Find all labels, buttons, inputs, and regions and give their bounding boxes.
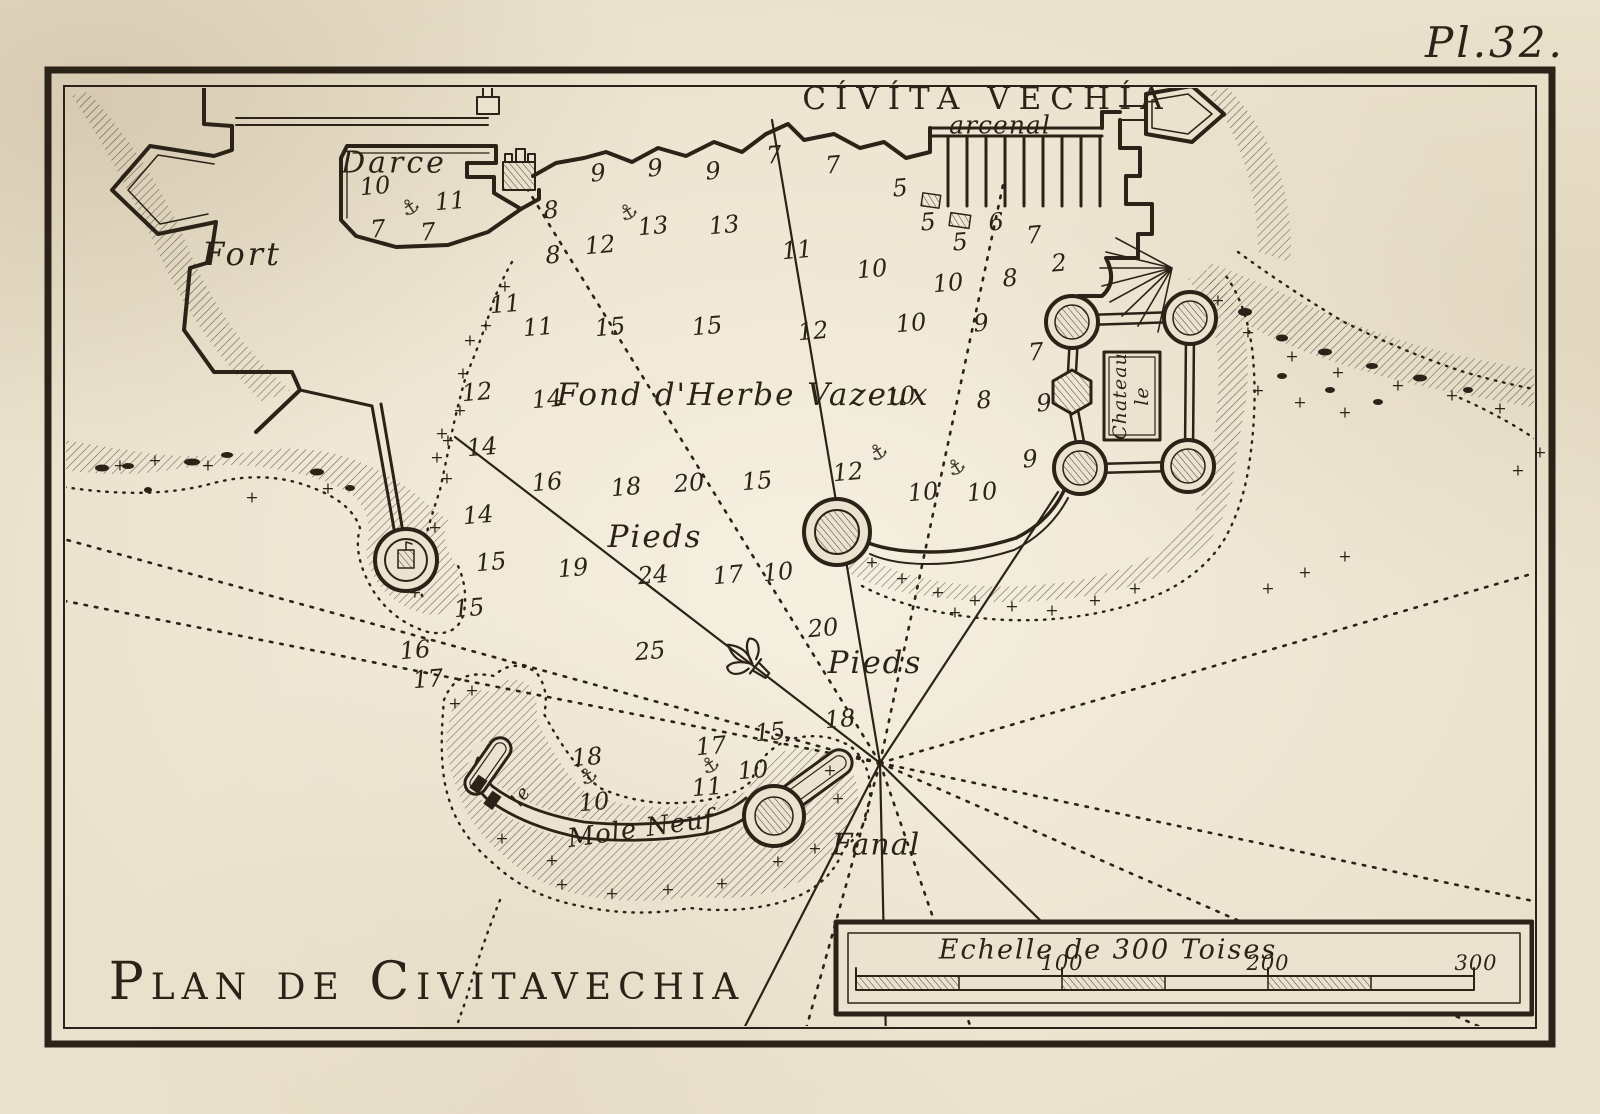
- rock-mark-icon: +: [440, 469, 453, 488]
- rock-mark-icon: +: [831, 789, 844, 808]
- depth-sounding: 15: [754, 717, 787, 748]
- rock-mark-icon: +: [661, 880, 674, 899]
- rock-mark-icon: +: [1533, 443, 1546, 462]
- depth-sounding: 18: [610, 472, 643, 503]
- rock-mark-icon: +: [1298, 563, 1311, 582]
- rock-mark-icon: +: [453, 401, 466, 420]
- rock-mark-icon: +: [1128, 579, 1141, 598]
- depth-sounding: 15: [691, 311, 724, 342]
- depth-sounding: 15: [475, 547, 508, 578]
- depth-sounding: 17: [712, 560, 745, 591]
- rock-mark-icon: +: [948, 603, 961, 622]
- rock-mark-icon: +: [931, 583, 944, 602]
- depth-sounding: 16: [399, 635, 432, 666]
- rock-mark-icon: +: [321, 479, 334, 498]
- rock-mark-icon: +: [865, 553, 878, 572]
- rock-mark-icon: +: [771, 852, 784, 871]
- symbols-layer: 1011779997758812131311556728101010978991…: [0, 0, 1600, 1114]
- depth-sounding: 12: [832, 457, 865, 488]
- rock-mark-icon: +: [465, 681, 478, 700]
- depth-sounding: 10: [966, 477, 999, 508]
- depth-sounding: 9: [704, 156, 722, 185]
- depth-sounding: 7: [1025, 220, 1043, 249]
- rock-mark-icon: +: [463, 331, 476, 350]
- depth-sounding: 20: [807, 613, 840, 644]
- rock-mark-icon: +: [495, 829, 508, 848]
- depth-sounding: 10: [895, 308, 928, 339]
- depth-sounding: 5: [951, 227, 969, 256]
- rock-mark-icon: +: [895, 569, 908, 588]
- depth-sounding: 2: [1050, 248, 1068, 277]
- depth-sounding: 10: [884, 381, 917, 412]
- depth-sounding: 8: [542, 195, 560, 224]
- rock-mark-icon: +: [408, 583, 421, 602]
- depth-sounding: 25: [634, 636, 667, 667]
- depth-sounding: 7: [419, 217, 437, 246]
- rock-mark-icon: +: [1045, 601, 1058, 620]
- depth-sounding: 10: [907, 477, 940, 508]
- engraved-chart: Cívíta Vechía arcenal Darce Fort Fond d'…: [0, 0, 1600, 1114]
- depth-sounding: 17: [412, 664, 445, 695]
- depth-sounding: 14: [531, 384, 564, 415]
- anchorage-icon: ⚓: [864, 437, 893, 467]
- rock-mark-icon: +: [1391, 376, 1404, 395]
- depth-sounding: 19: [557, 553, 590, 584]
- rock-mark-icon: +: [441, 431, 454, 450]
- depth-sounding: 9: [646, 153, 664, 182]
- depth-sounding: 11: [434, 186, 467, 217]
- rock-mark-icon: +: [428, 518, 441, 537]
- rock-mark-icon: +: [715, 874, 728, 893]
- depth-sounding: 16: [531, 467, 564, 498]
- rock-mark-icon: +: [968, 591, 981, 610]
- depth-sounding: 7: [765, 140, 783, 169]
- depth-sounding: 15: [741, 466, 774, 497]
- depth-sounding: 5: [919, 207, 937, 236]
- depth-sounding: 6: [987, 207, 1005, 236]
- plate-number: Pl.32.: [1425, 18, 1565, 67]
- depth-sounding: 5: [891, 173, 909, 202]
- rock-mark-icon: +: [456, 364, 469, 383]
- rock-mark-icon: +: [448, 694, 461, 713]
- depth-sounding: 10: [359, 171, 392, 202]
- rock-mark-icon: +: [148, 451, 161, 470]
- depth-sounding: 10: [578, 787, 611, 818]
- rock-mark-icon: +: [545, 851, 558, 870]
- rock-mark-icon: +: [1285, 347, 1298, 366]
- rock-mark-icon: +: [1511, 461, 1524, 480]
- rock-mark-icon: +: [808, 839, 821, 858]
- depth-sounding: 10: [932, 268, 965, 299]
- rock-mark-icon: +: [605, 884, 618, 903]
- rock-mark-icon: +: [430, 448, 443, 467]
- depth-sounding: 9: [972, 308, 990, 337]
- depth-sounding: 14: [466, 432, 499, 463]
- depth-sounding: 15: [453, 593, 486, 624]
- rock-mark-icon: +: [479, 316, 492, 335]
- depth-sounding: 15: [594, 312, 627, 343]
- depth-sounding: 9: [1021, 444, 1039, 473]
- depth-sounding: 14: [462, 500, 495, 531]
- depth-sounding: 12: [584, 230, 617, 261]
- depth-sounding: 8: [544, 240, 562, 269]
- depth-sounding: 11: [522, 312, 555, 343]
- rock-mark-icon: +: [113, 456, 126, 475]
- rock-mark-icon: +: [1241, 323, 1254, 342]
- rock-mark-icon: +: [823, 761, 836, 780]
- depth-sounding: 8: [1001, 263, 1019, 292]
- rock-mark-icon: +: [498, 277, 511, 296]
- anchorage-icon: ⚓: [942, 452, 971, 482]
- rock-mark-icon: +: [245, 488, 258, 507]
- rock-mark-icon: +: [1338, 403, 1351, 422]
- depth-sounding: 8: [975, 385, 993, 414]
- rock-mark-icon: +: [1251, 381, 1264, 400]
- depth-sounding: 7: [824, 150, 842, 179]
- rock-mark-icon: +: [201, 456, 214, 475]
- depth-sounding: 7: [1027, 337, 1045, 366]
- rock-mark-icon: +: [1445, 386, 1458, 405]
- rock-mark-icon: +: [1293, 393, 1306, 412]
- depth-sounding: 10: [762, 557, 795, 588]
- depth-sounding: 10: [856, 254, 889, 285]
- rock-mark-icon: +: [1088, 591, 1101, 610]
- depth-sounding: 10: [737, 755, 770, 786]
- depth-sounding: 24: [637, 560, 670, 591]
- depth-sounding: 9: [589, 158, 607, 187]
- rock-mark-icon: +: [1261, 579, 1274, 598]
- rock-mark-icon: +: [1338, 547, 1351, 566]
- rock-mark-icon: +: [1211, 291, 1224, 310]
- rock-mark-icon: +: [555, 875, 568, 894]
- depth-sounding: 20: [673, 468, 706, 499]
- depth-sounding: 18: [824, 704, 857, 735]
- rock-mark-icon: +: [1005, 597, 1018, 616]
- depth-sounding: 7: [369, 214, 387, 243]
- depth-sounding: 9: [1035, 388, 1053, 417]
- depth-sounding: 13: [708, 210, 741, 241]
- rock-mark-icon: +: [1331, 363, 1344, 382]
- depth-sounding: 12: [797, 316, 830, 347]
- rock-mark-icon: +: [1493, 399, 1506, 418]
- depth-sounding: 11: [781, 235, 814, 266]
